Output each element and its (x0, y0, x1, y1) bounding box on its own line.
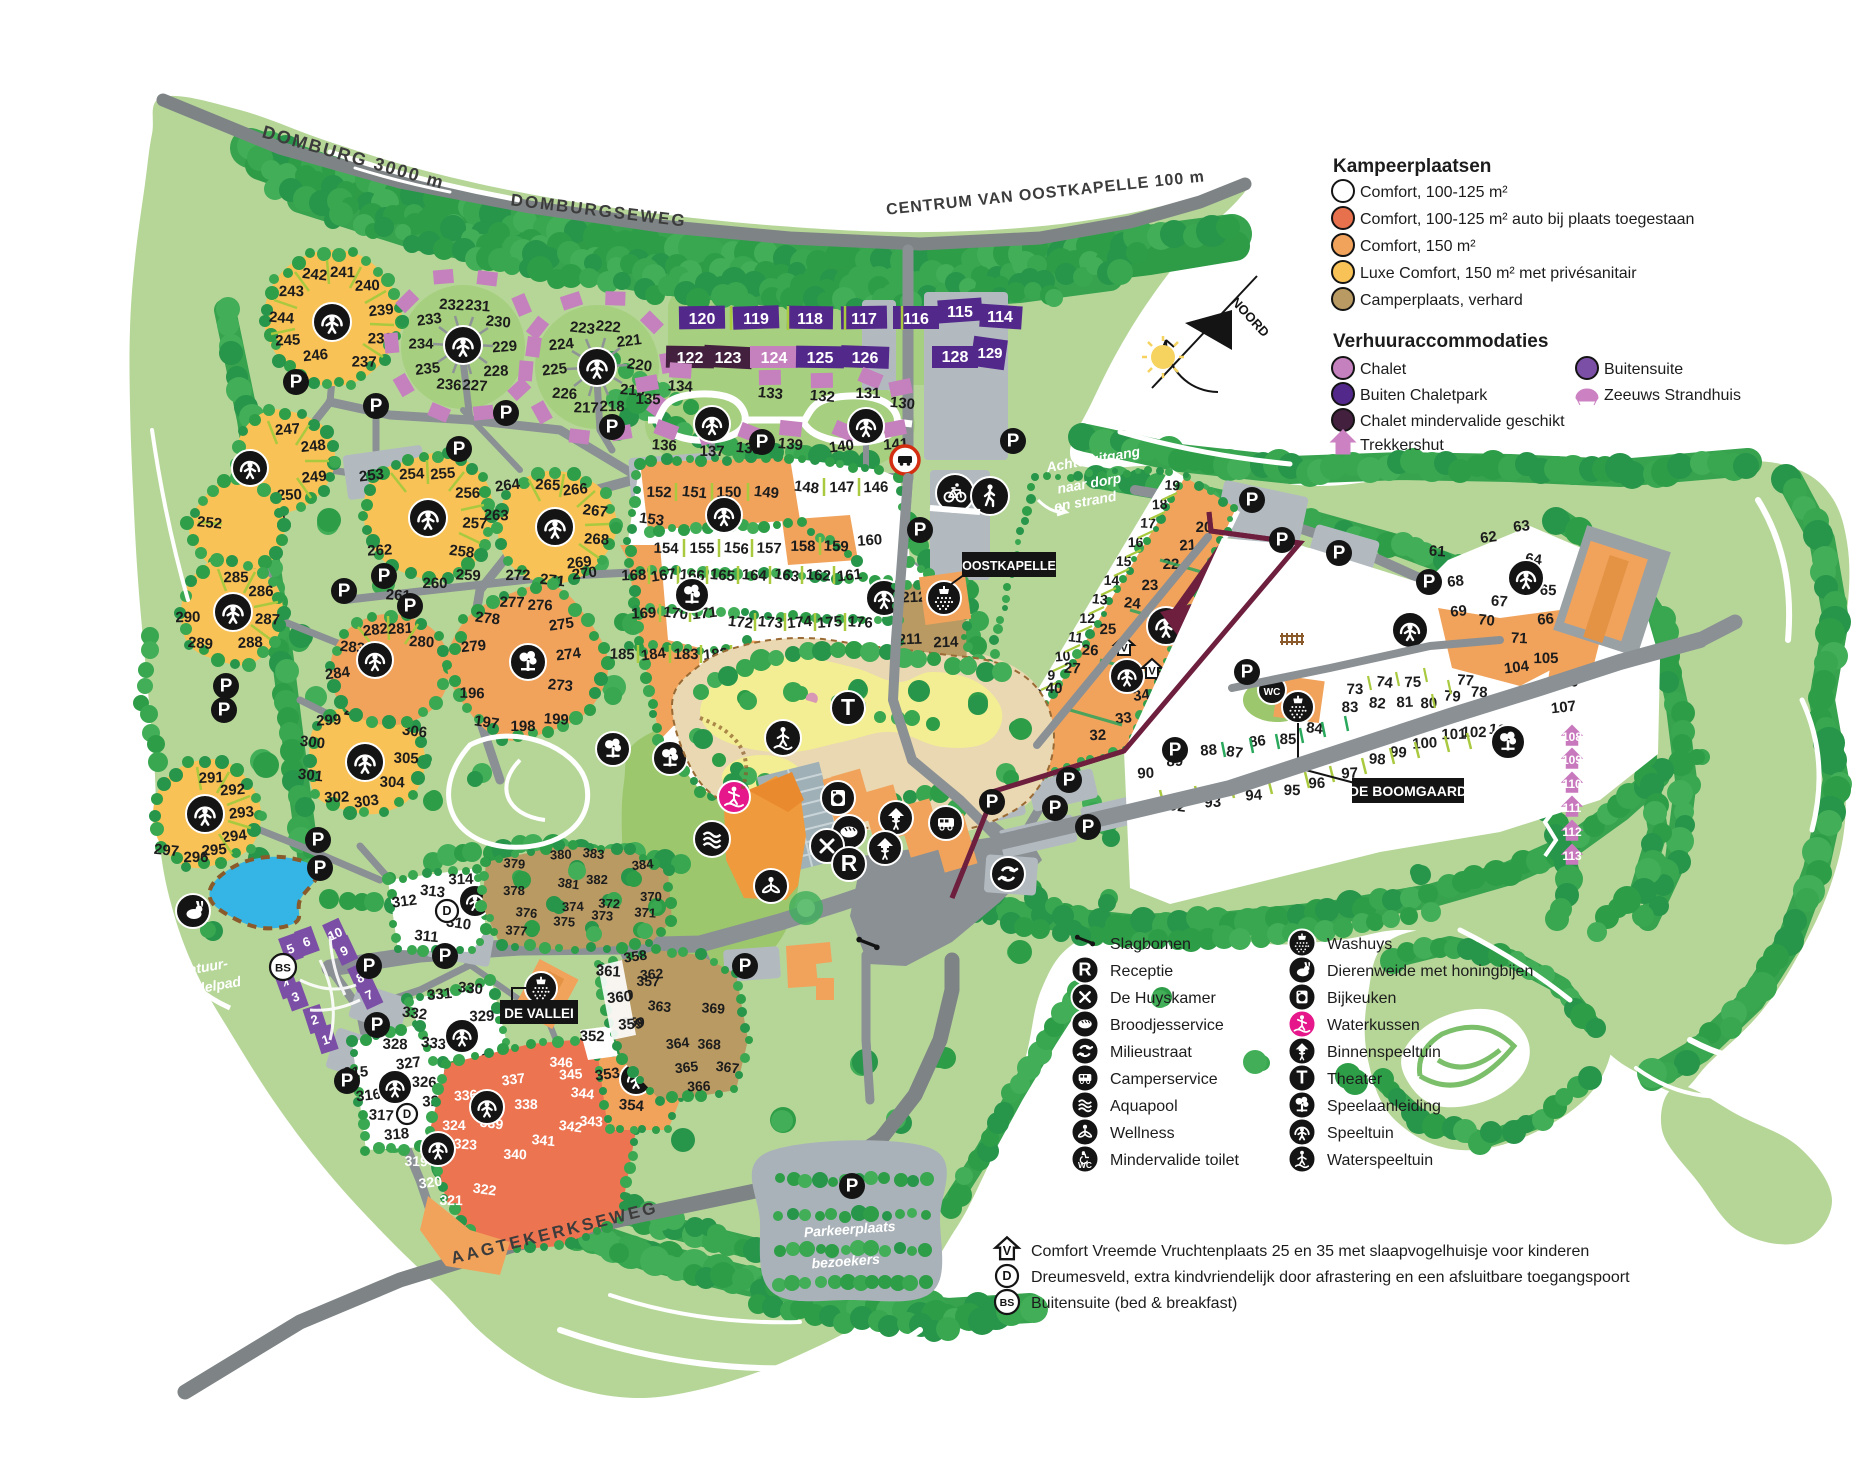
svg-text:341: 341 (531, 1131, 556, 1149)
svg-text:230: 230 (485, 312, 512, 331)
svg-text:267: 267 (582, 501, 609, 521)
svg-text:115: 115 (947, 304, 973, 321)
svg-text:P: P (846, 1174, 859, 1195)
svg-text:342: 342 (558, 1117, 583, 1136)
svg-text:Mindervalide toilet: Mindervalide toilet (1110, 1152, 1240, 1169)
svg-text:D: D (403, 1109, 411, 1121)
svg-text:P: P (500, 401, 513, 422)
svg-text:249: 249 (301, 468, 327, 487)
svg-text:256: 256 (455, 485, 480, 502)
svg-text:P: P (370, 394, 383, 415)
svg-text:252: 252 (196, 513, 223, 532)
svg-text:362: 362 (639, 965, 664, 983)
svg-text:359: 359 (618, 1015, 644, 1033)
svg-text:132: 132 (809, 387, 835, 406)
svg-text:BS: BS (275, 962, 291, 974)
svg-text:Broodjesservice: Broodjesservice (1110, 1017, 1224, 1034)
svg-text:104: 104 (1503, 658, 1530, 678)
svg-text:Washuys: Washuys (1327, 936, 1392, 953)
svg-text:286: 286 (248, 583, 273, 600)
svg-text:293: 293 (228, 803, 255, 823)
svg-text:P: P (1241, 660, 1254, 681)
svg-text:185: 185 (609, 645, 635, 663)
svg-text:68: 68 (1446, 572, 1464, 591)
svg-text:259: 259 (455, 566, 481, 584)
svg-text:338: 338 (514, 1096, 538, 1112)
svg-text:265: 265 (535, 476, 561, 494)
svg-text:154: 154 (653, 540, 679, 558)
svg-text:P: P (290, 370, 303, 391)
svg-text:373: 373 (591, 907, 614, 923)
svg-text:378: 378 (503, 883, 525, 898)
svg-text:32: 32 (1089, 727, 1106, 745)
svg-text:Buitensuite (bed & breakfast): Buitensuite (bed & breakfast) (1031, 1295, 1237, 1312)
svg-text:85: 85 (1280, 731, 1297, 748)
svg-text:Binnenspeeltuin: Binnenspeeltuin (1327, 1044, 1441, 1061)
svg-text:P: P (1082, 815, 1095, 836)
svg-text:Kampeerplaatsen: Kampeerplaatsen (1333, 156, 1491, 177)
svg-text:285: 285 (223, 569, 248, 586)
svg-text:27: 27 (1063, 660, 1081, 678)
svg-text:363: 363 (647, 997, 672, 1016)
svg-text:317: 317 (368, 1106, 394, 1124)
svg-text:168: 168 (621, 567, 647, 585)
svg-text:275: 275 (548, 614, 575, 634)
svg-text:61: 61 (1428, 542, 1446, 560)
svg-text:318: 318 (383, 1125, 409, 1144)
svg-text:157: 157 (756, 540, 782, 558)
svg-text:P: P (1007, 429, 1020, 450)
svg-text:26: 26 (1081, 642, 1098, 660)
svg-text:371: 371 (634, 904, 657, 920)
svg-text:P: P (218, 698, 231, 719)
svg-text:354: 354 (618, 1096, 645, 1115)
svg-text:274: 274 (555, 645, 583, 665)
svg-text:169: 169 (631, 604, 657, 622)
svg-text:229: 229 (492, 338, 518, 357)
svg-text:79: 79 (1443, 687, 1461, 705)
svg-text:90: 90 (1137, 765, 1155, 783)
svg-text:196: 196 (459, 685, 485, 703)
svg-text:73: 73 (1347, 681, 1364, 698)
svg-text:258: 258 (448, 542, 475, 562)
svg-text:260: 260 (422, 575, 447, 592)
svg-text:198: 198 (510, 718, 535, 735)
svg-text:375: 375 (553, 913, 576, 929)
svg-text:165: 165 (709, 566, 735, 585)
svg-text:369: 369 (701, 999, 726, 1017)
svg-text:P: P (1063, 768, 1076, 789)
svg-text:P: P (341, 1069, 354, 1090)
svg-text:149: 149 (753, 483, 780, 502)
svg-text:172: 172 (727, 613, 754, 633)
svg-text:235: 235 (414, 359, 441, 379)
svg-text:277: 277 (499, 594, 524, 612)
svg-text:136: 136 (651, 436, 677, 455)
svg-text:Buitensuite: Buitensuite (1604, 361, 1683, 378)
svg-text:163: 163 (773, 565, 800, 585)
svg-text:366: 366 (687, 1078, 711, 1095)
svg-text:340: 340 (503, 1146, 527, 1163)
svg-text:279: 279 (460, 637, 486, 656)
svg-text:184: 184 (640, 644, 668, 664)
svg-text:124: 124 (761, 350, 788, 367)
svg-text:384: 384 (631, 856, 655, 873)
svg-text:Comfort, 100-125 m² auto bij p: Comfort, 100-125 m² auto bij plaats toeg… (1360, 211, 1694, 228)
svg-text:23: 23 (1141, 577, 1158, 594)
svg-text:232: 232 (439, 296, 465, 315)
svg-text:130: 130 (889, 394, 916, 413)
svg-text:152: 152 (646, 484, 671, 501)
svg-text:P: P (756, 430, 769, 451)
svg-text:Receptie: Receptie (1110, 963, 1173, 980)
svg-text:25: 25 (1099, 621, 1116, 638)
svg-text:174: 174 (786, 613, 813, 632)
svg-text:161: 161 (836, 566, 863, 586)
svg-text:117: 117 (851, 311, 877, 328)
svg-text:R: R (841, 850, 858, 876)
svg-text:R: R (1078, 959, 1091, 979)
svg-text:173: 173 (757, 613, 783, 632)
svg-text:DE VALLEI: DE VALLEI (504, 1006, 574, 1021)
svg-text:133: 133 (757, 384, 784, 403)
svg-text:323: 323 (453, 1135, 478, 1153)
svg-text:272: 272 (505, 567, 530, 584)
svg-text:148: 148 (793, 478, 820, 498)
svg-text:159: 159 (823, 537, 849, 555)
svg-text:75: 75 (1404, 674, 1421, 692)
svg-text:71: 71 (1510, 630, 1528, 648)
svg-text:Speelaanleiding: Speelaanleiding (1327, 1098, 1441, 1115)
svg-text:131: 131 (855, 385, 880, 402)
svg-text:BS: BS (1000, 1297, 1015, 1309)
svg-text:P: P (404, 594, 417, 615)
svg-text:WC: WC (1078, 1160, 1092, 1170)
svg-text:Chalet: Chalet (1360, 361, 1407, 378)
svg-text:146: 146 (863, 479, 888, 497)
svg-text:337: 337 (501, 1069, 527, 1088)
svg-text:197: 197 (473, 712, 500, 732)
svg-text:111: 111 (1563, 801, 1582, 815)
svg-text:69: 69 (1449, 602, 1467, 621)
svg-text:88: 88 (1200, 741, 1218, 759)
svg-text:287: 287 (255, 611, 281, 629)
svg-text:74: 74 (1375, 673, 1394, 692)
svg-text:289: 289 (187, 634, 213, 653)
svg-text:Speeltuin: Speeltuin (1327, 1125, 1394, 1142)
svg-text:374: 374 (562, 899, 585, 915)
svg-text:P: P (1169, 738, 1182, 759)
svg-text:254: 254 (399, 465, 425, 483)
svg-text:225: 225 (541, 360, 568, 380)
svg-text:300: 300 (299, 733, 326, 753)
svg-text:376: 376 (515, 904, 538, 921)
svg-text:P: P (606, 415, 619, 436)
svg-text:D: D (442, 904, 451, 918)
svg-text:V: V (1003, 1244, 1012, 1258)
svg-text:223: 223 (569, 319, 596, 338)
svg-text:P: P (914, 518, 927, 539)
svg-text:Theater: Theater (1327, 1071, 1383, 1088)
svg-text:DE BOOMGAARD: DE BOOMGAARD (1349, 783, 1467, 799)
svg-text:264: 264 (494, 476, 521, 496)
svg-text:288: 288 (237, 634, 263, 652)
svg-text:160: 160 (857, 531, 883, 550)
svg-text:282: 282 (362, 620, 389, 640)
svg-text:Verhuuraccommodaties: Verhuuraccommodaties (1333, 331, 1548, 352)
svg-text:344: 344 (570, 1084, 595, 1103)
svg-text:T: T (841, 694, 855, 720)
svg-text:P: P (1423, 570, 1436, 591)
svg-text:364: 364 (665, 1034, 690, 1052)
svg-text:P: P (1246, 488, 1259, 509)
svg-text:240: 240 (354, 277, 380, 295)
svg-text:270: 270 (571, 564, 598, 584)
svg-text:Comfort, 100-125 m²: Comfort, 100-125 m² (1360, 184, 1508, 201)
svg-text:273: 273 (547, 676, 573, 695)
svg-text:Slagbomen: Slagbomen (1110, 936, 1191, 953)
svg-text:239: 239 (368, 301, 395, 320)
svg-text:162: 162 (805, 566, 831, 585)
svg-text:380: 380 (550, 847, 572, 863)
svg-text:330: 330 (457, 979, 484, 998)
svg-text:62: 62 (1479, 528, 1498, 547)
svg-text:119: 119 (743, 311, 769, 328)
svg-text:332: 332 (401, 1003, 428, 1023)
svg-text:135: 135 (635, 391, 660, 408)
svg-text:P: P (1049, 796, 1062, 817)
svg-text:19: 19 (1164, 477, 1181, 494)
svg-text:377: 377 (505, 922, 528, 939)
svg-text:120: 120 (689, 311, 716, 328)
svg-text:224: 224 (548, 335, 575, 354)
svg-text:324: 324 (442, 1117, 466, 1133)
svg-text:OOSTKAPELLE: OOSTKAPELLE (962, 559, 1056, 573)
svg-text:183: 183 (673, 646, 698, 663)
svg-text:Trekkershut: Trekkershut (1360, 437, 1444, 454)
svg-text:156: 156 (723, 539, 749, 558)
svg-text:110: 110 (1562, 777, 1582, 791)
svg-text:304: 304 (379, 774, 405, 792)
svg-text:63: 63 (1512, 517, 1530, 536)
svg-text:321: 321 (439, 1192, 463, 1208)
svg-text:352: 352 (579, 1028, 604, 1046)
svg-text:220: 220 (626, 355, 653, 375)
svg-text:234: 234 (409, 336, 435, 353)
svg-text:Milieustraat: Milieustraat (1110, 1044, 1192, 1061)
svg-text:125: 125 (807, 350, 834, 367)
svg-text:365: 365 (674, 1058, 699, 1076)
svg-text:331: 331 (426, 985, 453, 1004)
svg-text:164: 164 (741, 566, 768, 585)
svg-text:167: 167 (650, 565, 677, 585)
svg-text:320: 320 (418, 1173, 443, 1192)
svg-text:248: 248 (300, 437, 327, 456)
svg-text:353: 353 (594, 1065, 621, 1085)
svg-text:P: P (1276, 528, 1289, 549)
svg-text:P: P (371, 1013, 384, 1034)
svg-text:199: 199 (543, 710, 569, 728)
svg-text:360: 360 (606, 988, 632, 1007)
svg-text:Luxe Comfort, 150 m² met privé: Luxe Comfort, 150 m² met privésanitair (1360, 265, 1637, 282)
svg-text:118: 118 (797, 311, 823, 328)
svg-text:67: 67 (1490, 592, 1508, 610)
svg-text:Camperservice: Camperservice (1110, 1071, 1218, 1088)
svg-text:Bijkeuken: Bijkeuken (1327, 990, 1396, 1007)
svg-text:247: 247 (274, 420, 300, 439)
svg-text:243: 243 (279, 283, 304, 300)
svg-text:Comfort Vreemde Vruchtenplaats: Comfort Vreemde Vruchtenplaats 25 en 35 … (1031, 1243, 1589, 1260)
svg-text:276: 276 (527, 597, 552, 615)
svg-text:368: 368 (697, 1036, 721, 1053)
svg-text:Waterkussen: Waterkussen (1327, 1017, 1420, 1034)
svg-text:87: 87 (1225, 743, 1244, 762)
svg-text:66: 66 (1537, 610, 1555, 628)
svg-text:151: 151 (681, 483, 708, 503)
svg-text:P: P (986, 790, 999, 811)
svg-text:302: 302 (324, 788, 350, 806)
svg-text:95: 95 (1284, 782, 1301, 799)
svg-text:Buiten Chaletpark: Buiten Chaletpark (1360, 387, 1488, 404)
svg-text:280: 280 (409, 633, 435, 651)
svg-text:237: 237 (352, 354, 377, 371)
svg-text:139: 139 (777, 435, 803, 454)
svg-text:268: 268 (584, 530, 610, 548)
svg-text:153: 153 (638, 509, 665, 529)
svg-text:83: 83 (1342, 699, 1359, 716)
svg-text:241: 241 (330, 264, 355, 281)
svg-text:244: 244 (268, 309, 295, 328)
svg-text:134: 134 (667, 377, 694, 395)
svg-text:128: 128 (942, 349, 969, 366)
svg-text:81: 81 (1396, 694, 1413, 712)
svg-text:278: 278 (474, 609, 501, 629)
svg-text:370: 370 (640, 889, 662, 904)
svg-text:108: 108 (1562, 730, 1582, 744)
svg-text:126: 126 (852, 350, 879, 367)
svg-text:345: 345 (559, 1065, 583, 1082)
svg-text:D: D (1002, 1269, 1011, 1283)
svg-text:227: 227 (462, 377, 488, 396)
svg-text:96: 96 (1308, 775, 1325, 793)
svg-text:311: 311 (414, 927, 440, 946)
svg-text:P: P (439, 944, 452, 965)
svg-text:305: 305 (393, 750, 419, 768)
svg-text:253: 253 (358, 466, 385, 486)
svg-text:112: 112 (1562, 825, 1582, 839)
svg-text:40: 40 (1046, 680, 1063, 697)
svg-text:312: 312 (391, 892, 418, 912)
svg-text:218: 218 (600, 398, 625, 415)
svg-text:Dierenweide met honingbijen: Dierenweide met honingbijen (1327, 963, 1533, 980)
svg-text:262: 262 (367, 541, 393, 559)
svg-text:P: P (363, 954, 376, 975)
svg-text:381: 381 (557, 875, 581, 893)
svg-text:242: 242 (301, 265, 328, 285)
svg-text:P: P (739, 954, 752, 975)
svg-text:Camperplaats, verhard: Camperplaats, verhard (1360, 292, 1523, 309)
svg-text:129: 129 (977, 345, 1002, 362)
svg-text:113: 113 (1562, 849, 1582, 863)
svg-text:147: 147 (829, 479, 854, 497)
svg-text:Dreumesveld, extra kindvriende: Dreumesveld, extra kindvriendelijk door … (1031, 1269, 1630, 1286)
svg-text:379: 379 (503, 855, 526, 872)
svg-text:Comfort, 150 m²: Comfort, 150 m² (1360, 238, 1476, 255)
svg-text:292: 292 (220, 781, 246, 799)
svg-text:367: 367 (715, 1058, 740, 1077)
svg-text:284: 284 (324, 663, 352, 683)
svg-text:WC: WC (1264, 687, 1281, 698)
svg-text:Zeeuws Strandhuis: Zeeuws Strandhuis (1604, 387, 1741, 404)
svg-text:290: 290 (175, 609, 200, 627)
svg-text:175: 175 (816, 613, 842, 632)
svg-text:82: 82 (1368, 694, 1386, 712)
svg-text:T: T (1296, 1067, 1307, 1087)
svg-text:263: 263 (483, 507, 509, 525)
svg-text:P: P (312, 828, 325, 849)
svg-text:Aquapool: Aquapool (1110, 1098, 1178, 1115)
svg-text:328: 328 (382, 1036, 407, 1053)
svg-text:301: 301 (297, 766, 324, 786)
svg-text:140: 140 (828, 437, 855, 457)
svg-text:Waterspeeltuin: Waterspeeltuin (1327, 1152, 1433, 1169)
svg-text:303: 303 (353, 791, 380, 811)
svg-text:246: 246 (302, 346, 329, 365)
svg-text:109: 109 (1562, 753, 1582, 767)
svg-text:383: 383 (582, 845, 605, 862)
svg-text:333: 333 (420, 1034, 447, 1054)
svg-text:V: V (1148, 666, 1156, 678)
svg-text:214: 214 (933, 634, 959, 652)
svg-text:114: 114 (987, 309, 1013, 326)
svg-text:155: 155 (689, 540, 714, 557)
svg-text:116: 116 (903, 311, 929, 328)
svg-text:Wellness: Wellness (1110, 1125, 1175, 1142)
svg-text:236: 236 (436, 375, 462, 394)
svg-text:322: 322 (472, 1180, 498, 1199)
svg-text:P: P (378, 564, 391, 585)
svg-text:70: 70 (1477, 611, 1495, 630)
svg-text:P: P (220, 674, 233, 695)
svg-text:98: 98 (1368, 751, 1386, 769)
svg-text:382: 382 (586, 872, 608, 887)
svg-text:255: 255 (430, 465, 456, 484)
svg-text:Chalet mindervalide geschikt: Chalet mindervalide geschikt (1360, 413, 1565, 430)
svg-text:P: P (338, 579, 351, 600)
svg-text:De Huyskamer: De Huyskamer (1110, 990, 1216, 1007)
svg-text:158: 158 (790, 538, 815, 555)
svg-text:176: 176 (847, 613, 873, 632)
svg-text:313: 313 (419, 882, 446, 902)
svg-text:361: 361 (595, 962, 621, 981)
svg-text:123: 123 (715, 350, 742, 367)
svg-text:245: 245 (275, 331, 301, 349)
svg-text:297: 297 (153, 841, 180, 860)
svg-text:107: 107 (1550, 698, 1577, 718)
svg-text:102: 102 (1461, 724, 1486, 741)
svg-text:P: P (314, 856, 327, 877)
svg-text:299: 299 (316, 711, 342, 730)
svg-text:P: P (453, 437, 466, 458)
svg-text:296: 296 (183, 849, 208, 866)
svg-text:137: 137 (699, 443, 724, 460)
svg-text:105: 105 (1533, 650, 1558, 667)
svg-text:P: P (1333, 541, 1346, 562)
svg-text:217: 217 (574, 399, 599, 417)
svg-text:226: 226 (552, 385, 578, 403)
svg-text:266: 266 (562, 480, 588, 499)
